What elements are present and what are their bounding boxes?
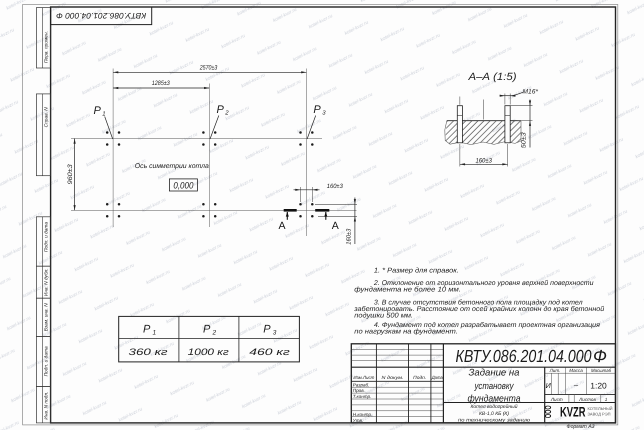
svg-text:160±3: 160±3 [345, 228, 352, 245]
svg-text:160±3: 160±3 [475, 157, 492, 164]
svg-text:Пров.: Пров. [353, 388, 365, 393]
svg-text:по техническому заданию: по техническому заданию [458, 418, 530, 424]
svg-text:фундамента: фундамента [468, 394, 521, 405]
svg-text:И: И [546, 381, 552, 390]
svg-text:Лит.: Лит. [549, 368, 561, 373]
svg-text:1285±3: 1285±3 [152, 80, 170, 87]
svg-text:P: P [143, 324, 151, 336]
svg-text:Изм.Лист: Изм.Лист [353, 375, 374, 380]
svg-text:Т.контр.: Т.контр. [353, 394, 372, 399]
svg-text:ЗАВОД РЭП: ЗАВОД РЭП [588, 412, 611, 417]
svg-text:Подп. и дата: Подп. и дата [44, 346, 50, 376]
svg-text:P: P [217, 104, 225, 116]
svg-text:Н.контр.: Н.контр. [353, 412, 372, 417]
svg-text:Справ. N: Справ. N [44, 107, 50, 128]
svg-text:2570±3: 2570±3 [199, 65, 218, 72]
svg-text:3: 3 [273, 330, 277, 337]
svg-text:КВТУ.086.201.04.000: КВТУ.086.201.04.000 [456, 346, 592, 366]
svg-text:Листов: Листов [578, 397, 596, 402]
svg-text:Перв. примен.: Перв. примен. [44, 31, 50, 63]
svg-text:1. * Размер для справок.: 1. * Размер для справок. [374, 268, 459, 275]
svg-text:Лист: Лист [550, 397, 563, 402]
svg-text:фундамента не более 10 мм.: фундамента не более 10 мм. [354, 285, 461, 293]
svg-text:Масса: Масса [569, 368, 583, 373]
svg-text:Подп.: Подп. [413, 375, 426, 380]
svg-text:1:20: 1:20 [590, 382, 607, 391]
svg-text:460 кг: 460 кг [249, 346, 290, 357]
svg-text:установку: установку [474, 381, 515, 392]
svg-text:Ф: Ф [593, 346, 607, 366]
svg-text:КВ-1,0 КБ (К): КВ-1,0 КБ (К) [479, 411, 509, 417]
svg-text:Масштаб: Масштаб [591, 368, 611, 373]
svg-text:А–А (1:5): А–А (1:5) [467, 71, 516, 83]
svg-text:подушки 500 мм.: подушки 500 мм. [354, 312, 413, 319]
svg-text:960±3: 960±3 [67, 164, 74, 184]
svg-text:1: 1 [153, 330, 157, 337]
svg-text:P: P [203, 324, 211, 336]
svg-text:A: A [332, 220, 339, 232]
svg-text:Инв. N дубл.: Инв. N дубл. [44, 268, 50, 296]
svg-text:0,000: 0,000 [173, 181, 194, 191]
svg-text:Дата: Дата [431, 375, 443, 380]
svg-text:50±3: 50±3 [521, 132, 528, 149]
svg-text:N докум.: N докум. [382, 375, 404, 380]
svg-text:Взам. инв. N: Взам. инв. N [44, 303, 50, 331]
svg-text:A: A [278, 220, 285, 232]
svg-text:1: 1 [605, 397, 608, 402]
svg-text:P: P [94, 105, 102, 117]
svg-text:160±3: 160±3 [327, 183, 344, 190]
svg-text:Инв. N подл.: Инв. N подл. [44, 392, 50, 420]
svg-text:2: 2 [212, 330, 217, 337]
svg-text:КВТУ.086.201.04.000 Ф: КВТУ.086.201.04.000 Ф [56, 11, 147, 20]
svg-text:КОТЕЛЬНЫЙ: КОТЕЛЬНЫЙ [588, 406, 613, 411]
svg-text:KVZR: KVZR [560, 404, 586, 419]
svg-text:1: 1 [102, 111, 105, 118]
svg-text:Задание на: Задание на [469, 368, 520, 379]
svg-text:360 кг: 360 кг [129, 346, 169, 357]
svg-text:–: – [573, 381, 579, 390]
svg-text:Формат А3: Формат А3 [567, 424, 595, 430]
svg-text:М16*: М16* [523, 89, 539, 96]
svg-text:Котел водогрейный: Котел водогрейный [471, 404, 518, 410]
svg-text:Ось симметрии котла: Ось симметрии котла [135, 163, 209, 170]
svg-text:Утв.: Утв. [353, 418, 363, 423]
svg-text:по нагрузкам на фундамент.: по нагрузкам на фундамент. [354, 328, 458, 335]
svg-text:Подп. и дата: Подп. и дата [44, 222, 50, 252]
svg-text:P: P [263, 324, 271, 336]
svg-text:ООО: ООО [543, 405, 553, 418]
svg-text:Разраб.: Разраб. [353, 382, 370, 387]
svg-text:P: P [313, 104, 321, 116]
svg-text:1000 кг: 1000 кг [188, 346, 229, 357]
svg-text:2: 2 [224, 110, 229, 117]
